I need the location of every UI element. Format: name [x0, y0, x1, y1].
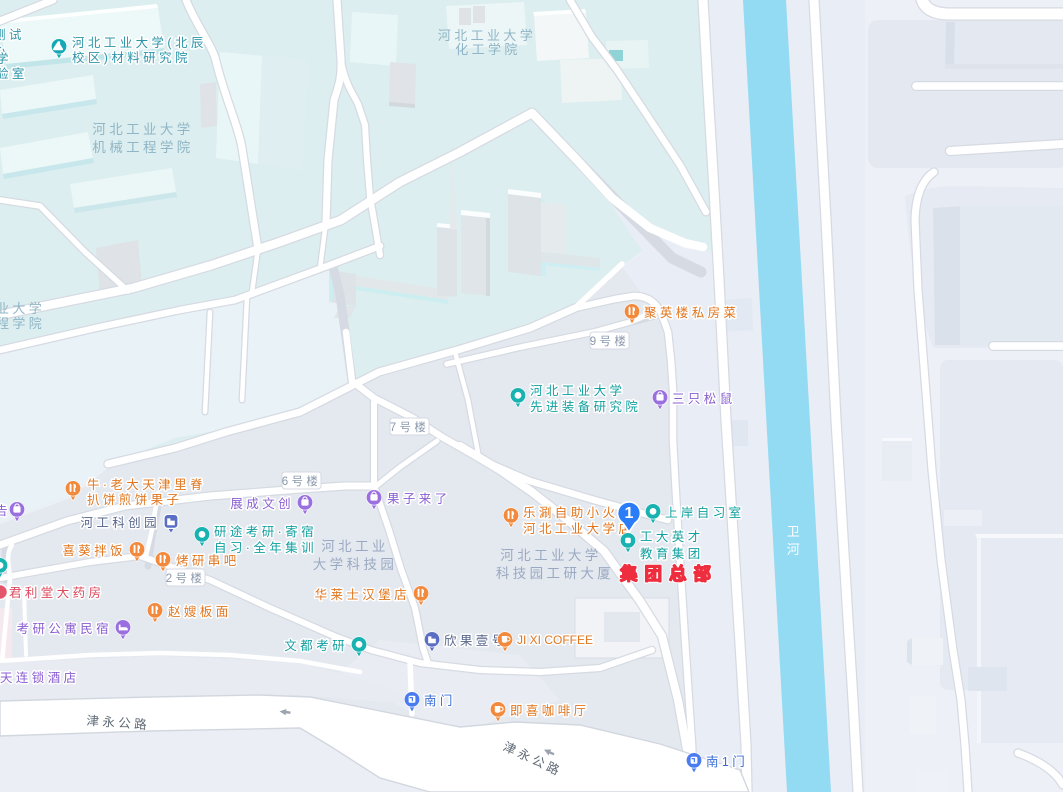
svg-text:三只松鼠: 三只松鼠	[672, 391, 736, 406]
svg-text:河北工业大学: 河北工业大学	[500, 548, 601, 563]
svg-text:果子来了: 果子来了	[387, 492, 451, 506]
svg-text:河北工业大学店: 河北工业大学店	[523, 521, 634, 536]
svg-text:即喜咖啡厅: 即喜咖啡厅	[510, 703, 590, 718]
svg-text:南1门: 南1门	[706, 754, 748, 769]
svg-text:上岸自习室: 上岸自习室	[665, 505, 745, 520]
svg-text:7号楼: 7号楼	[390, 420, 430, 434]
svg-text:1: 1	[625, 505, 634, 522]
svg-text:喜葵拌饭: 喜葵拌饭	[62, 543, 126, 558]
svg-text:河北工业大学(北辰: 河北工业大学(北辰	[72, 35, 207, 50]
svg-text:验室: 验室	[0, 66, 28, 81]
svg-text:河北工业大学: 河北工业大学	[438, 28, 536, 43]
svg-text:集团总部: 集团总部	[619, 564, 718, 584]
svg-text:机械工程学院: 机械工程学院	[92, 140, 193, 155]
svg-text:研途考研·寄宿: 研途考研·寄宿	[214, 524, 317, 539]
svg-text:赵嫂板面: 赵嫂板面	[168, 605, 232, 619]
svg-text:河北工业: 河北工业	[321, 539, 389, 554]
svg-text:工大英才: 工大英才	[640, 530, 704, 544]
svg-text:大学科技园: 大学科技园	[313, 557, 398, 572]
svg-text:化工学院: 化工学院	[455, 42, 521, 57]
svg-text:2号楼: 2号楼	[166, 571, 206, 585]
svg-text:河工科创园: 河工科创园	[80, 516, 160, 530]
svg-text:南门: 南门	[424, 693, 456, 708]
svg-text:JI XI COFFEE: JI XI COFFEE	[517, 633, 593, 647]
svg-text:考研公寓民宿: 考研公寓民宿	[17, 621, 112, 636]
svg-text:文都考研: 文都考研	[284, 638, 348, 653]
svg-text:业大学: 业大学	[0, 301, 45, 316]
svg-text:聚英楼私房菜: 聚英楼私房菜	[644, 305, 739, 320]
svg-text:牛·老大天津里脊: 牛·老大天津里脊	[87, 477, 206, 492]
svg-text:先进装备研究院: 先进装备研究院	[530, 399, 641, 414]
svg-text:华莱士汉堡店: 华莱士汉堡店	[315, 587, 410, 602]
svg-text:河: 河	[787, 542, 803, 557]
svg-text:扒饼煎饼果子: 扒饼煎饼果子	[87, 492, 182, 507]
svg-text:展成文创: 展成文创	[230, 496, 294, 511]
svg-text:校区)材料研究院: 校区)材料研究院	[72, 50, 191, 65]
svg-text:河北工业大学: 河北工业大学	[92, 122, 193, 137]
svg-text:测试: 测试	[0, 27, 25, 42]
svg-text:9号楼: 9号楼	[590, 334, 630, 348]
svg-text:科技园工研大厦: 科技园工研大厦	[496, 566, 614, 581]
svg-text:6号楼: 6号楼	[282, 474, 322, 488]
svg-text:学: 学	[0, 51, 12, 66]
svg-text:天连锁酒店: 天连锁酒店	[0, 670, 80, 685]
svg-text:程学院: 程学院	[0, 316, 45, 331]
svg-text:河北工业大学: 河北工业大学	[530, 383, 625, 398]
svg-text:教育集团: 教育集团	[640, 546, 704, 561]
svg-text:君利堂大药房: 君利堂大药房	[9, 585, 104, 600]
svg-text:自习·全年集训: 自习·全年集训	[214, 540, 317, 555]
svg-text:烤研串吧: 烤研串吧	[176, 553, 240, 568]
svg-text:卫: 卫	[787, 524, 803, 539]
